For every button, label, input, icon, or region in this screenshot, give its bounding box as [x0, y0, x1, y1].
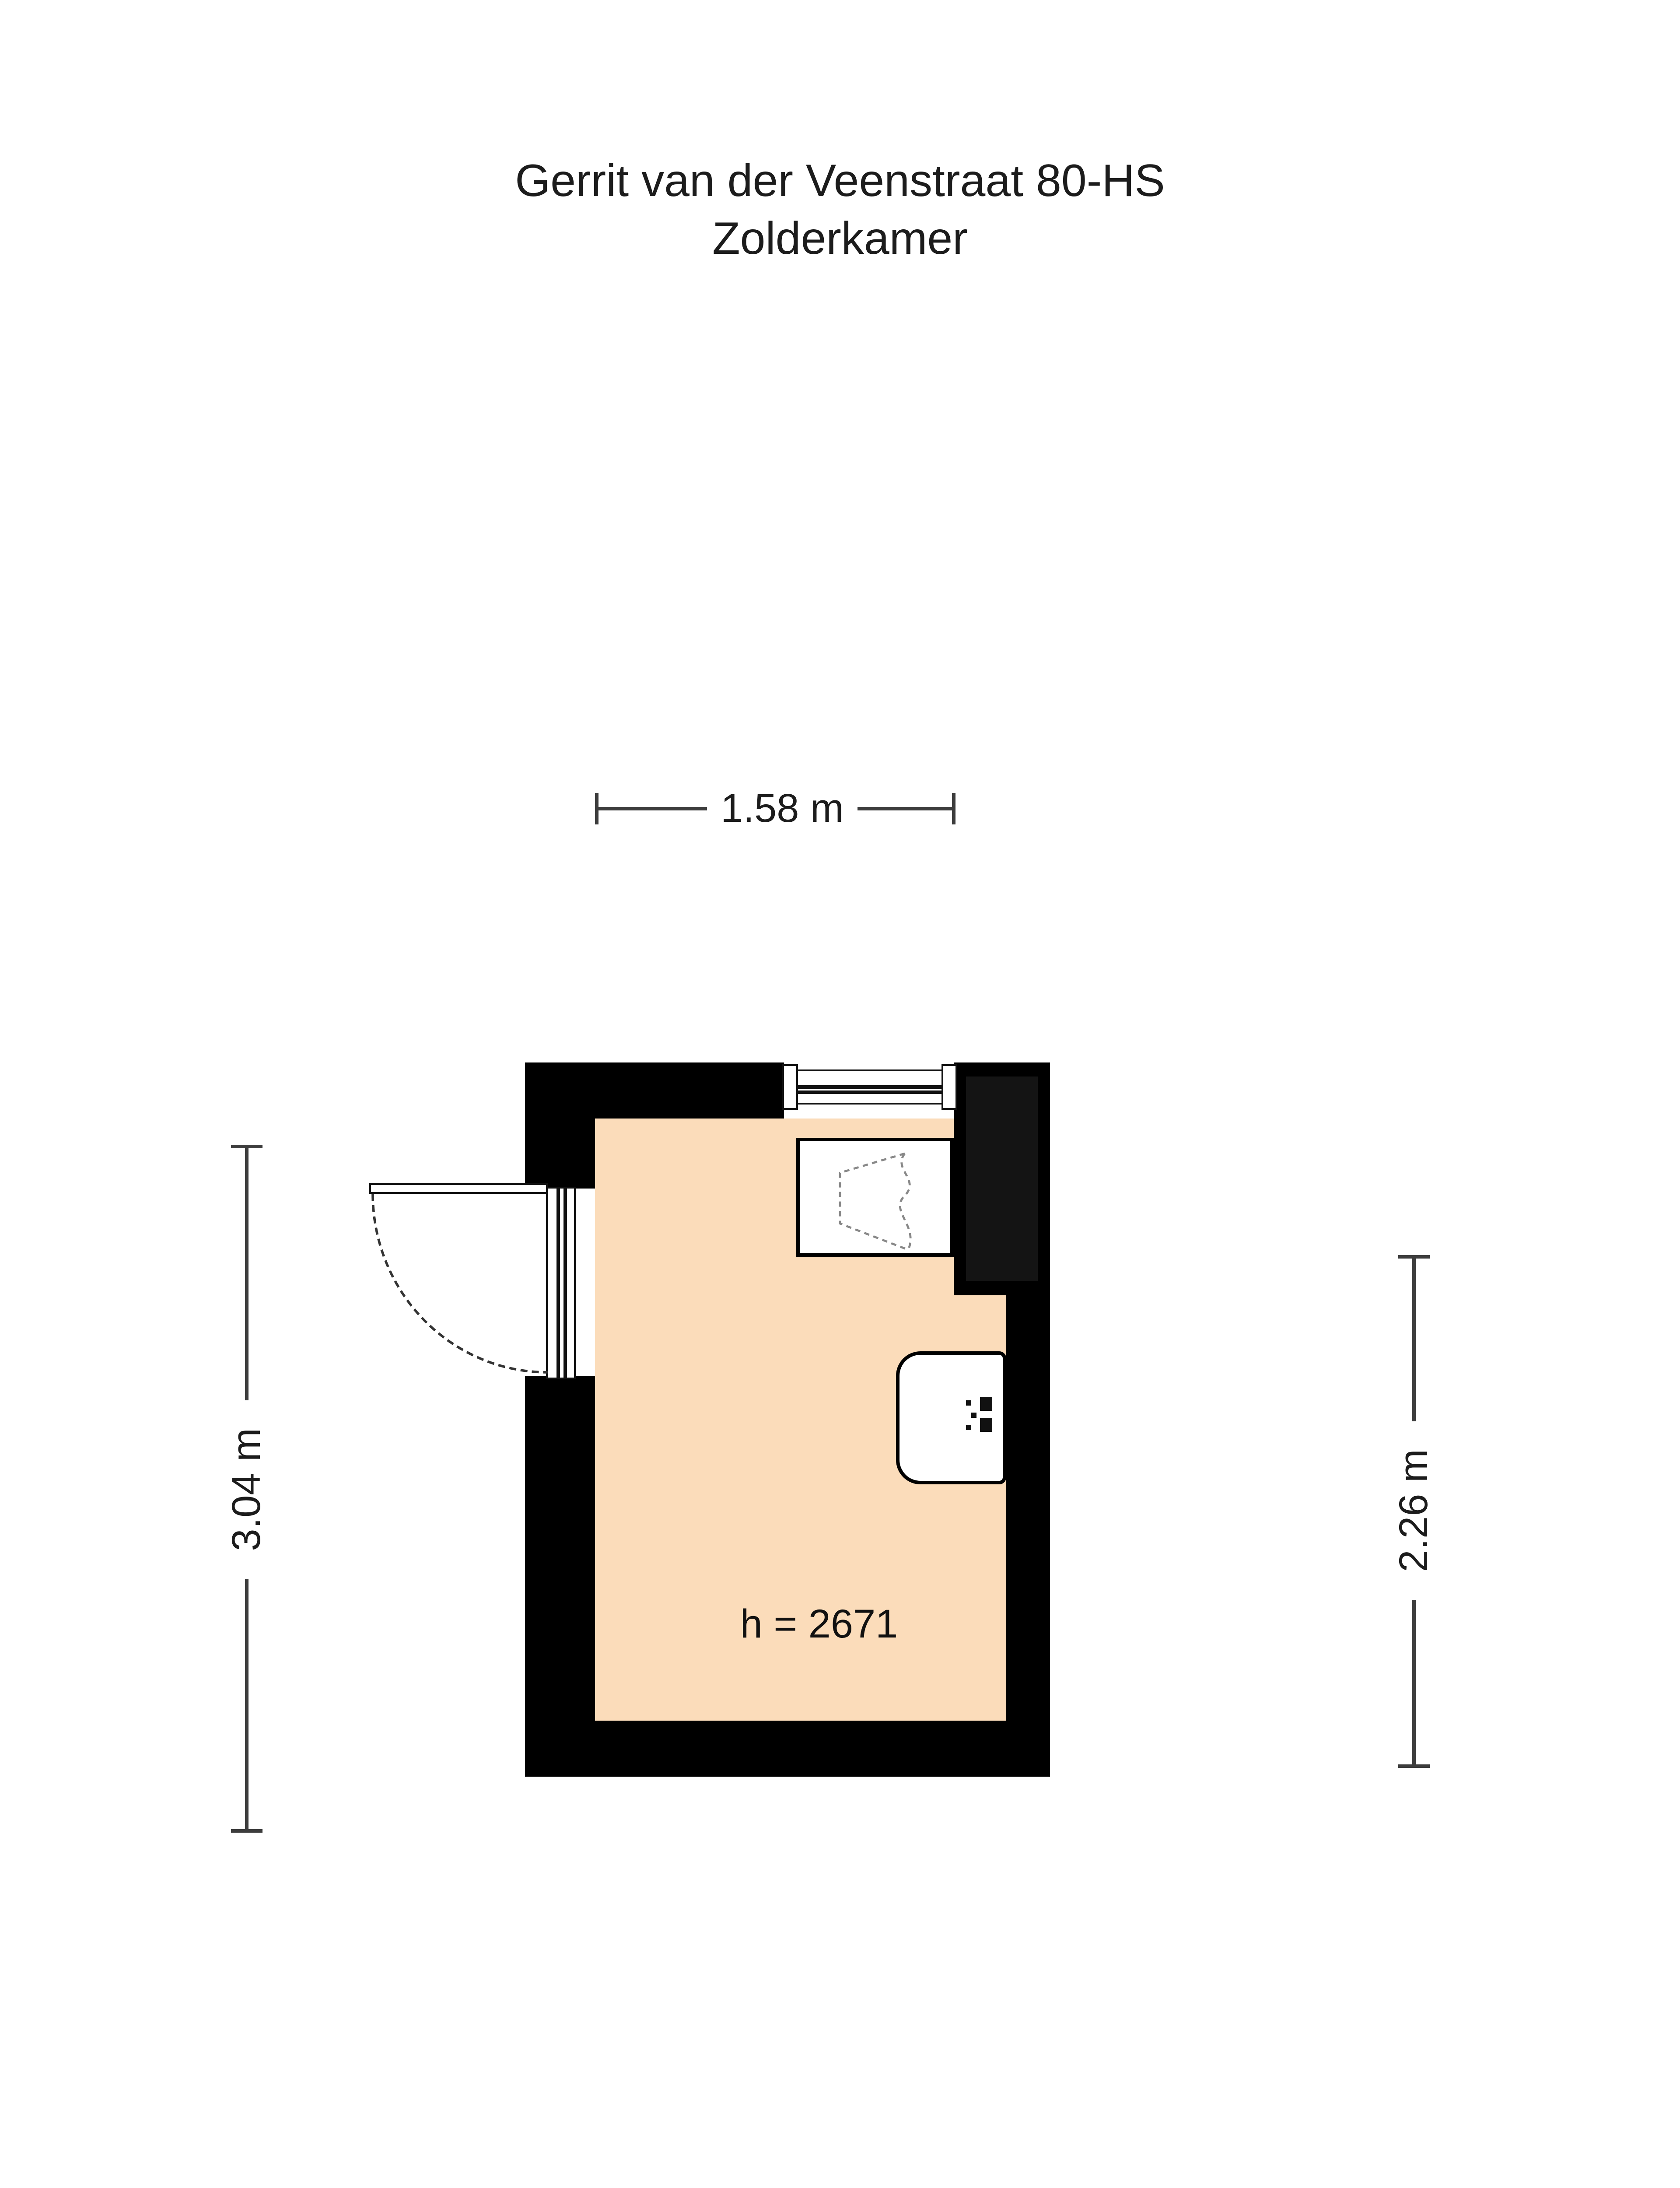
wall-bottom	[525, 1721, 1050, 1777]
dimension-left-label: 3.04 m	[223, 1428, 270, 1551]
shower	[796, 1138, 954, 1257]
dimension-left-bottom-tick	[231, 1829, 262, 1833]
door-frame	[546, 1187, 576, 1379]
door-jamb-line	[556, 1189, 559, 1378]
room-height-label: h = 2671	[740, 1601, 898, 1648]
dimension-top-right-tick	[952, 793, 955, 824]
door-jamb-line	[564, 1189, 567, 1378]
dimension-top-line-right	[857, 807, 954, 810]
window-rail	[786, 1085, 952, 1088]
window-end-cap	[941, 1064, 956, 1110]
shaft-dark-area	[966, 1076, 1038, 1281]
window-rail	[786, 1091, 952, 1094]
dimension-right-line-top	[1412, 1257, 1416, 1421]
title-room-name: Zolderkamer	[0, 210, 1680, 268]
title-address: Gerrit van der Veenstraat 80-HS	[0, 152, 1680, 210]
dimension-right-label: 2.26 m	[1390, 1449, 1438, 1572]
wall-right	[1006, 1295, 1050, 1777]
dimension-left-line-bottom	[245, 1579, 248, 1831]
page-title: Gerrit van der Veenstraat 80-HS Zolderka…	[0, 152, 1680, 268]
door-swing-icon	[373, 1194, 548, 1372]
sink	[896, 1351, 1006, 1484]
dimension-top-label: 1.58 m	[721, 785, 843, 832]
dimension-right-bottom-tick	[1398, 1764, 1430, 1768]
floorplan-page: Gerrit van der Veenstraat 80-HS Zolderka…	[0, 0, 1680, 2188]
wall-left-upper	[525, 1062, 595, 1189]
window-icon	[784, 1069, 954, 1105]
dimension-right-line-bottom	[1412, 1600, 1416, 1766]
dimension-left-line-top	[245, 1147, 248, 1400]
dimension-top-line-left	[597, 807, 707, 810]
wall-left-lower	[525, 1376, 595, 1777]
door-leaf	[369, 1183, 548, 1194]
window-end-cap	[781, 1064, 797, 1110]
